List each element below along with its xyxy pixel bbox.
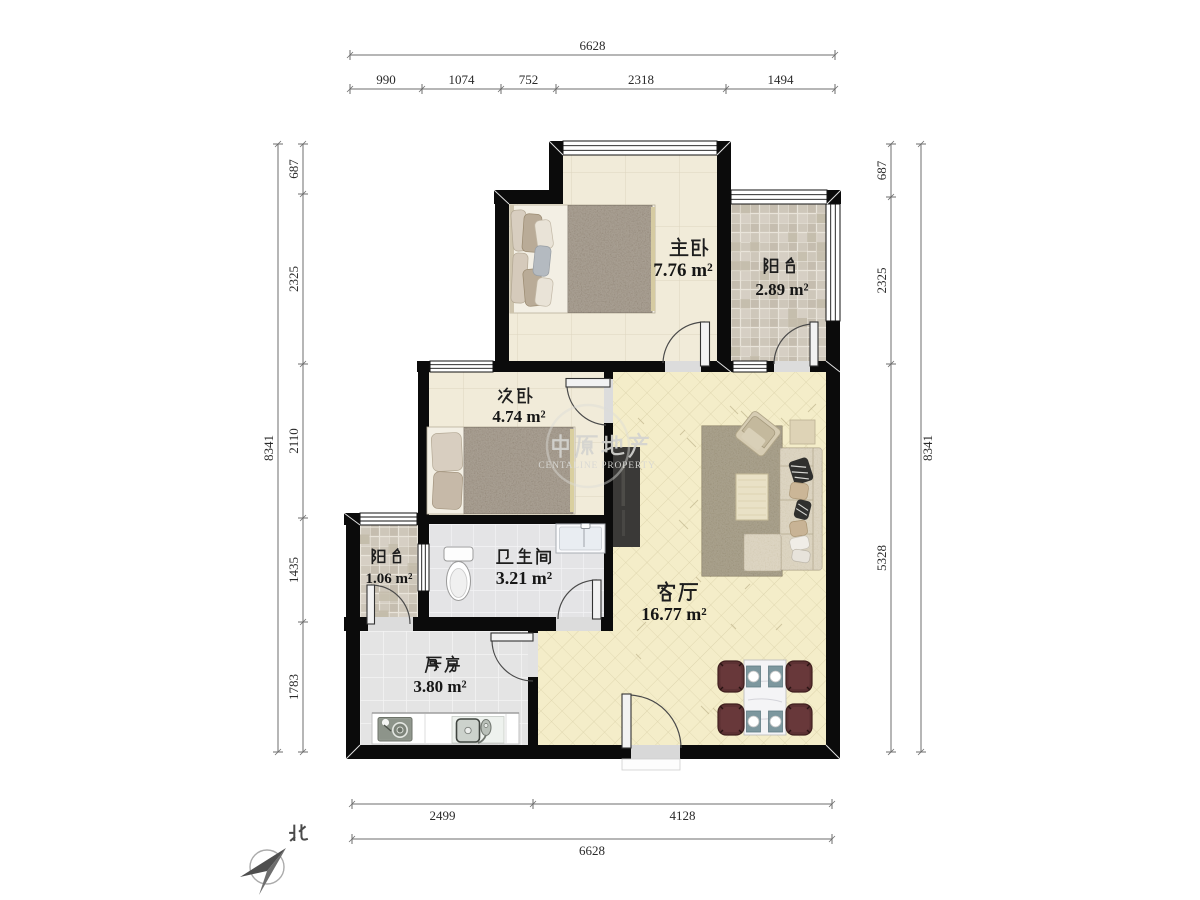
svg-text:2.89 m²: 2.89 m² [755,280,808,299]
svg-text:2325: 2325 [874,268,889,294]
svg-text:7.76 m²: 7.76 m² [653,260,713,281]
svg-text:CENTALINE PROPERTY: CENTALINE PROPERTY [538,461,655,471]
svg-text:4.74 m²: 4.74 m² [492,407,545,426]
svg-text:752: 752 [519,72,539,87]
svg-text:2110: 2110 [286,428,301,454]
svg-text:1435: 1435 [286,557,301,583]
svg-text:2499: 2499 [430,808,456,823]
svg-text:1074: 1074 [449,72,476,87]
svg-text:687: 687 [874,160,889,180]
svg-text:2318: 2318 [628,72,654,87]
svg-text:8341: 8341 [920,435,935,461]
svg-text:8341: 8341 [261,435,276,461]
svg-text:3.80 m²: 3.80 m² [413,677,466,696]
svg-text:16.77 m²: 16.77 m² [641,604,706,624]
svg-text:6628: 6628 [580,38,606,53]
svg-text:5328: 5328 [874,545,889,571]
svg-text:990: 990 [376,72,396,87]
svg-text:6628: 6628 [579,843,605,858]
svg-text:4128: 4128 [670,808,696,823]
svg-text:2325: 2325 [286,266,301,292]
svg-text:1.06 m²: 1.06 m² [366,571,413,587]
svg-text:3.21 m²: 3.21 m² [496,568,552,588]
svg-text:1783: 1783 [286,674,301,700]
svg-text:687: 687 [286,159,301,179]
svg-text:1494: 1494 [768,72,795,87]
